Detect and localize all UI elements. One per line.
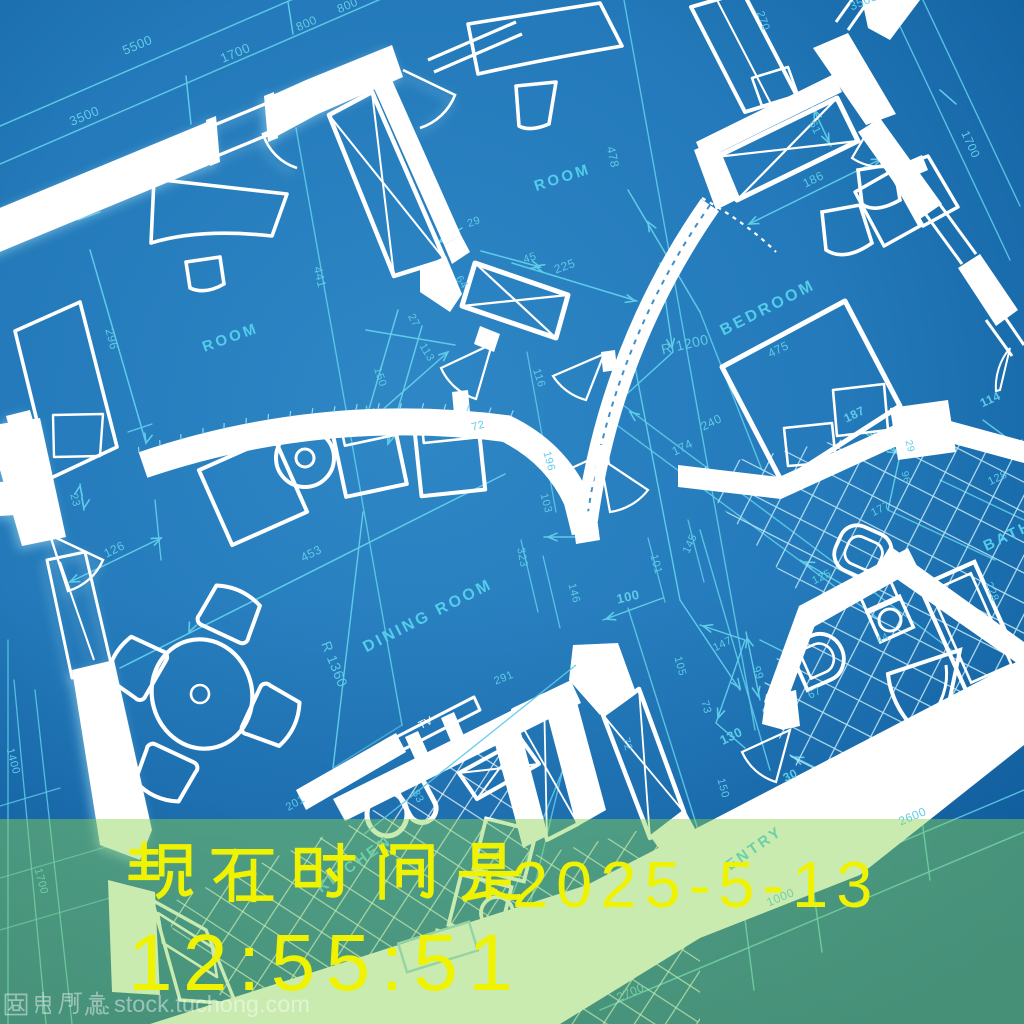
svg-text:stock.tuchong.com: stock.tuchong.com <box>114 991 310 1017</box>
svg-text:2025-5-13: 2025-5-13 <box>512 848 880 921</box>
